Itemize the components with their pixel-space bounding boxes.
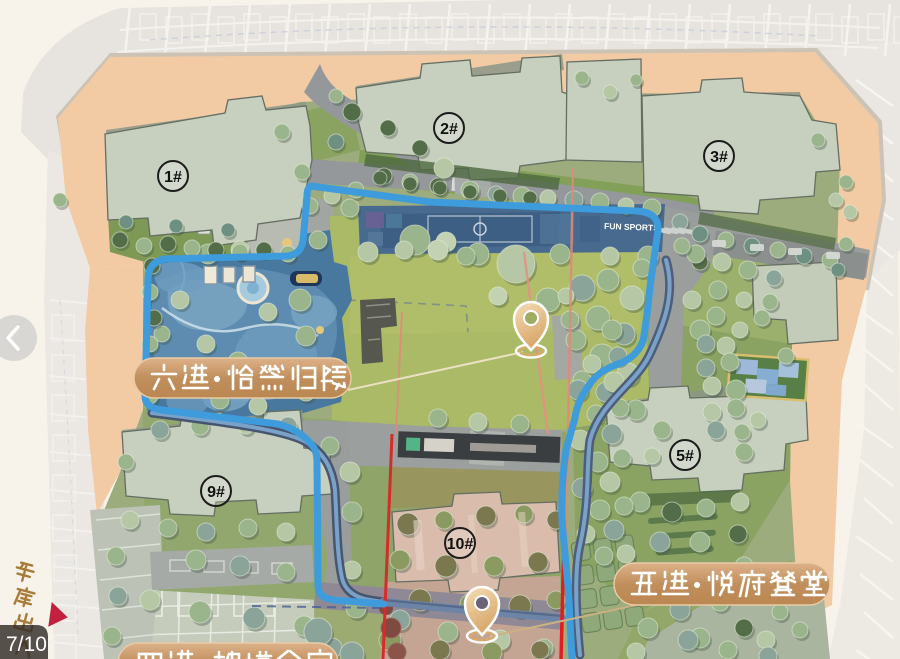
svg-text:10#: 10# <box>447 536 474 553</box>
svg-text:FUN SPORTS: FUN SPORTS <box>604 221 659 233</box>
svg-text:2#: 2# <box>440 121 458 138</box>
svg-text:9#: 9# <box>207 484 225 501</box>
svg-text:5#: 5# <box>676 448 694 465</box>
svg-text:7/10: 7/10 <box>6 633 47 656</box>
svg-text:1#: 1# <box>164 169 182 186</box>
svg-text:3#: 3# <box>710 149 728 166</box>
